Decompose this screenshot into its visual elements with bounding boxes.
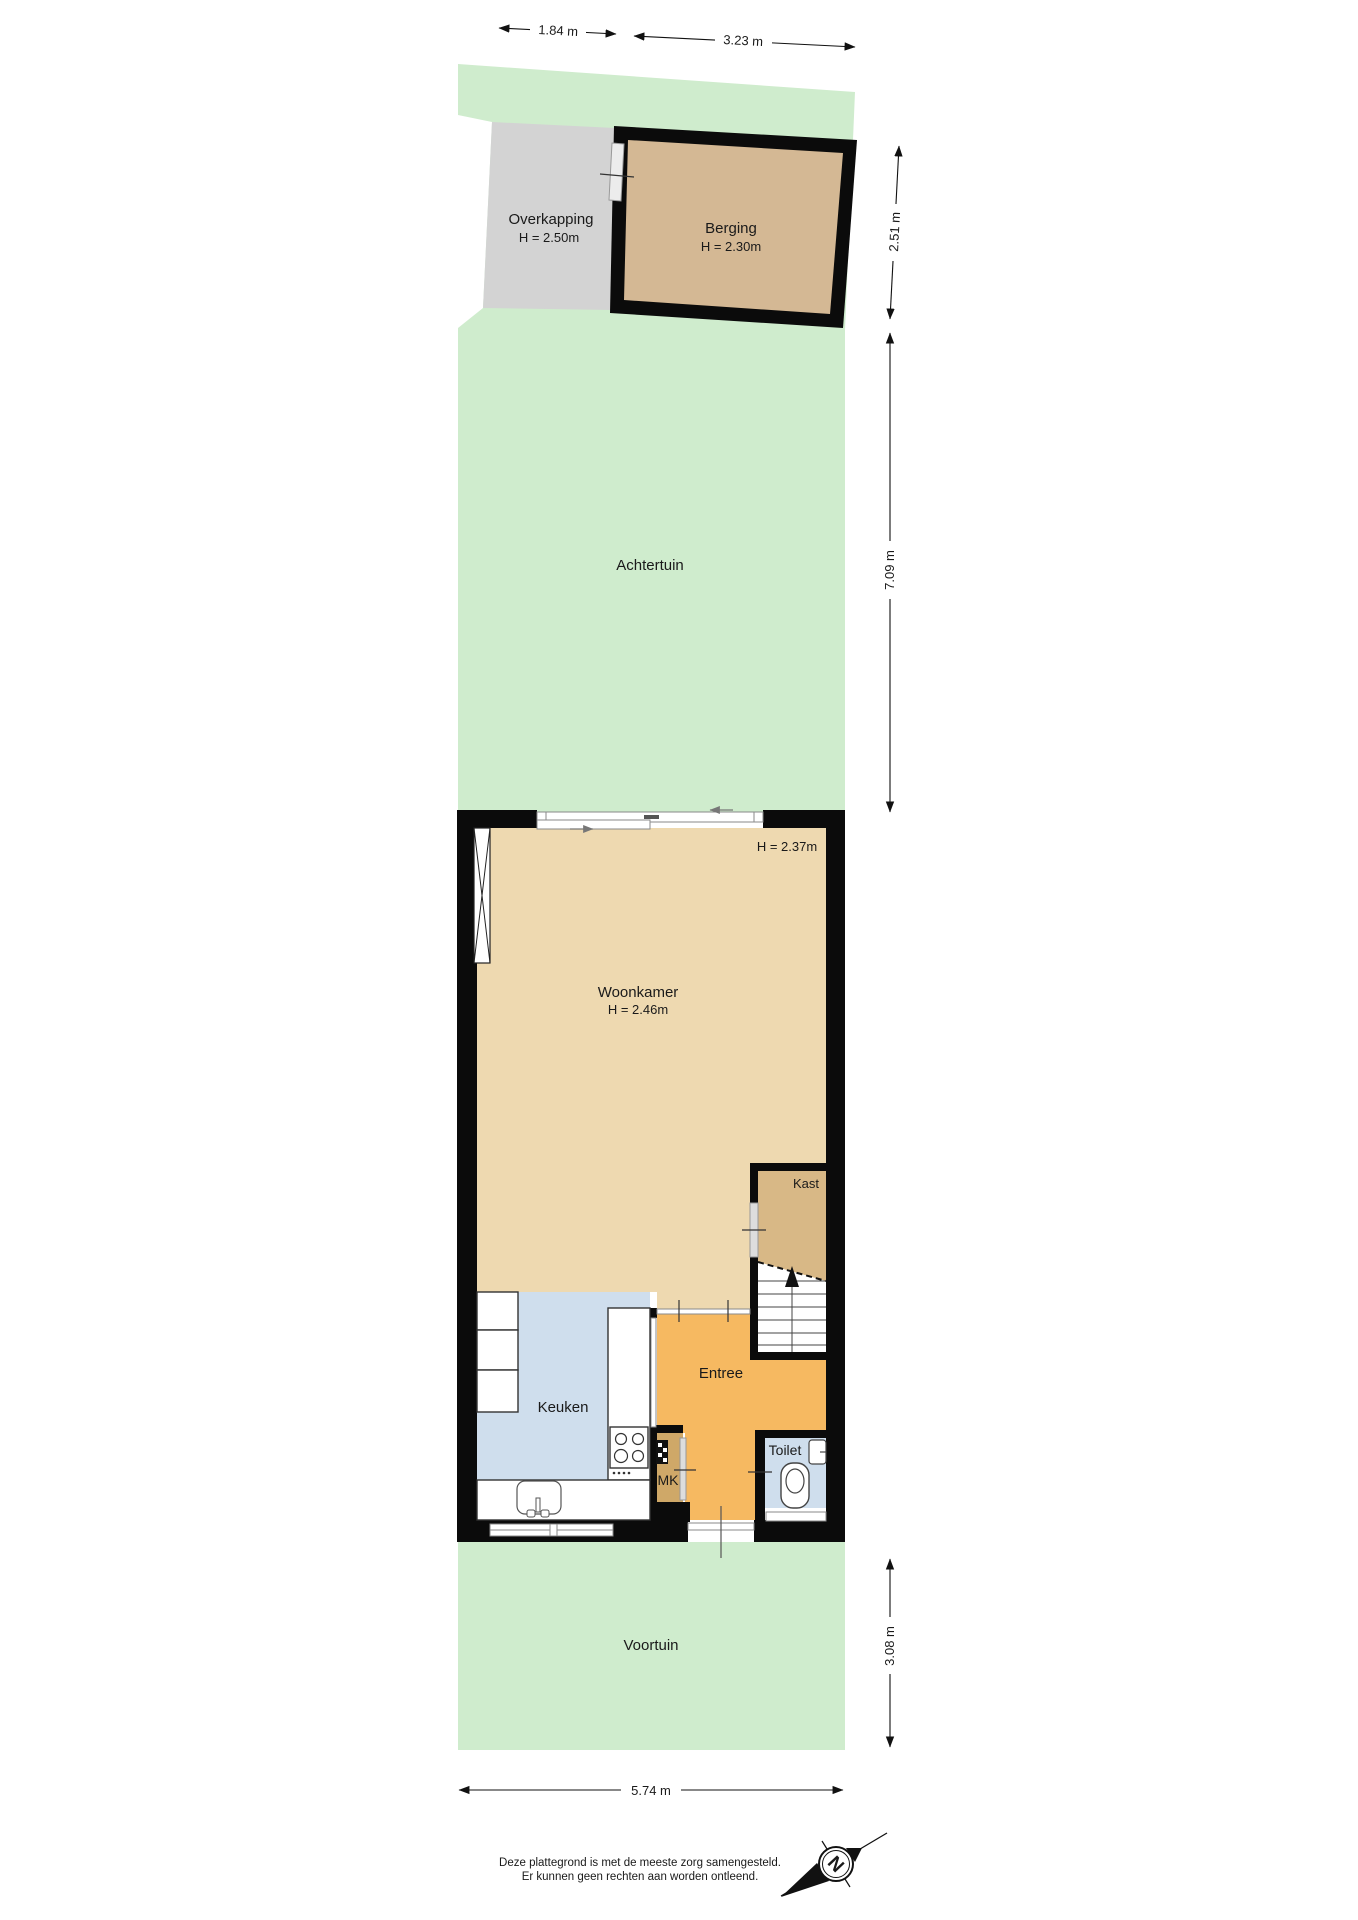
berging-door	[609, 143, 624, 201]
footer: Deze plattegrond is met de meeste zorg s…	[499, 1857, 781, 1883]
dim-top-right: 3.23 m	[723, 32, 763, 49]
label-berging-height: H = 2.30m	[701, 239, 761, 254]
livingroom-window	[474, 828, 490, 963]
dim-top-left: 1.84 m	[538, 22, 578, 39]
meterbox-icon	[656, 1440, 668, 1464]
footer-line2: Er kunnen geen rechten aan worden ontlee…	[522, 1871, 759, 1883]
label-overkapping: Overkapping	[508, 211, 593, 228]
floorplan-page: 1.84 m 3.23 m 2.51 m 7.09 m 3.08 m 5.74 …	[0, 0, 1358, 1920]
label-overkapping-height: H = 2.50m	[519, 230, 579, 245]
stove	[610, 1427, 648, 1474]
label-voortuin: Voortuin	[623, 1637, 678, 1654]
partition-keuken-entree	[651, 1318, 656, 1427]
dim-right-middle: 7.09 m	[882, 550, 897, 590]
toilet-bowl	[781, 1463, 809, 1508]
label-mk: MK	[658, 1472, 680, 1488]
label-keuken: Keuken	[538, 1399, 589, 1416]
label-berging: Berging	[705, 220, 757, 237]
dim-bottom: 5.74 m	[631, 1783, 671, 1798]
label-kast: Kast	[793, 1176, 819, 1191]
sliding-door	[537, 810, 763, 829]
label-toilet: Toilet	[769, 1442, 802, 1458]
label-woonkamer: Woonkamer	[598, 984, 679, 1001]
label-woonkamer-height: H = 2.46m	[608, 1002, 668, 1017]
toilet-sink	[809, 1440, 826, 1464]
dim-right-upper: 2.51 m	[886, 212, 903, 252]
label-achtertuin: Achtertuin	[616, 557, 684, 574]
kitchen-sink	[517, 1481, 561, 1517]
toilet-window	[766, 1512, 826, 1521]
compass-icon: N	[781, 1833, 887, 1897]
keuken-window	[490, 1524, 613, 1536]
label-woonkamer-height2: H = 2.37m	[757, 839, 817, 854]
footer-line1: Deze plattegrond is met de meeste zorg s…	[499, 1857, 781, 1869]
dim-right-lower: 3.08 m	[882, 1626, 897, 1666]
label-entree: Entree	[699, 1365, 743, 1382]
floorplan-drawing: 1.84 m 3.23 m 2.51 m 7.09 m 3.08 m 5.74 …	[0, 0, 1358, 1920]
